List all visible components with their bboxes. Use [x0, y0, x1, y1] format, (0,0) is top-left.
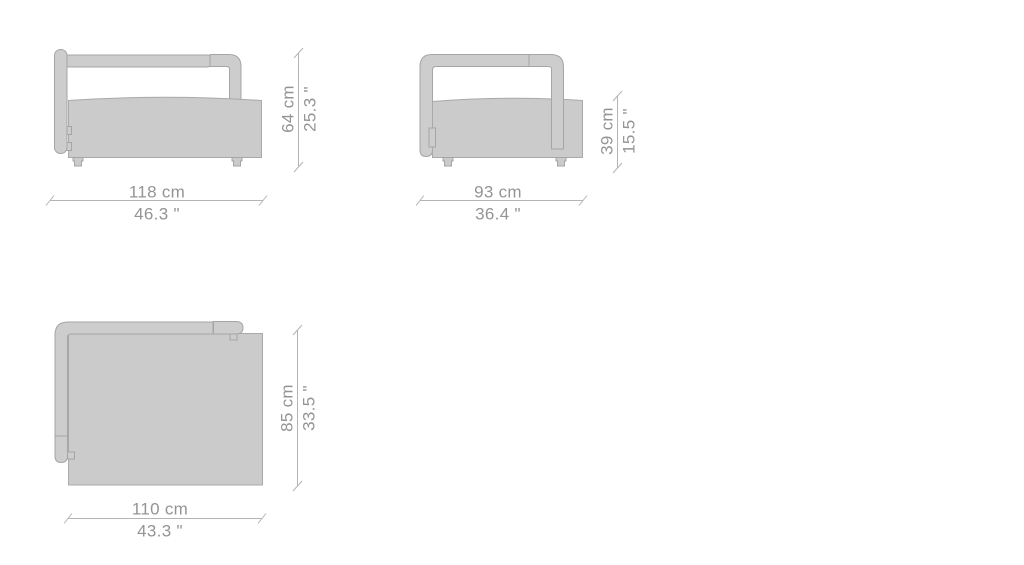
- side-foot-left: [443, 158, 453, 167]
- front-foot-right: [232, 158, 242, 167]
- front-foot-left: [73, 158, 83, 167]
- front-top-tube: [60, 55, 213, 67]
- side-height-cm-label: 39 cm: [599, 107, 616, 155]
- top-width-in-label: 43.3 ": [137, 523, 183, 540]
- side-left-tube-tab: [429, 128, 436, 147]
- top-height-cm-label: 85 cm: [279, 384, 296, 432]
- top-tube-stub-right: [230, 334, 237, 340]
- front-seat-body: [69, 97, 262, 157]
- dimension-drawing-page: 118 cm 46.3 " 64 cm 25.3 " 93 cm 36.4 " …: [0, 0, 1024, 565]
- top-height-in-label: 33.5 ": [301, 385, 318, 431]
- front-height-in-label: 25.3 ": [302, 86, 319, 132]
- side-foot-right: [556, 158, 566, 167]
- top-seat-body: [69, 334, 263, 486]
- side-width-in-label: 36.4 ": [475, 206, 521, 223]
- top-tube-stub-left: [68, 452, 75, 459]
- furniture-views-drawing: [0, 0, 1024, 565]
- top-width-cm-label: 110 cm: [132, 501, 188, 518]
- top-view: [55, 322, 302, 524]
- front-height-cm-label: 64 cm: [280, 85, 297, 133]
- front-width-cm-label: 118 cm: [129, 184, 185, 201]
- front-width-in-label: 46.3 ": [134, 206, 180, 223]
- side-height-in-label: 15.5 ": [621, 108, 638, 154]
- side-width-cm-label: 93 cm: [474, 184, 522, 201]
- front-right-tube-bend: [210, 55, 241, 104]
- front-left-tube: [55, 50, 68, 154]
- top-tube-end-cap: [213, 322, 243, 335]
